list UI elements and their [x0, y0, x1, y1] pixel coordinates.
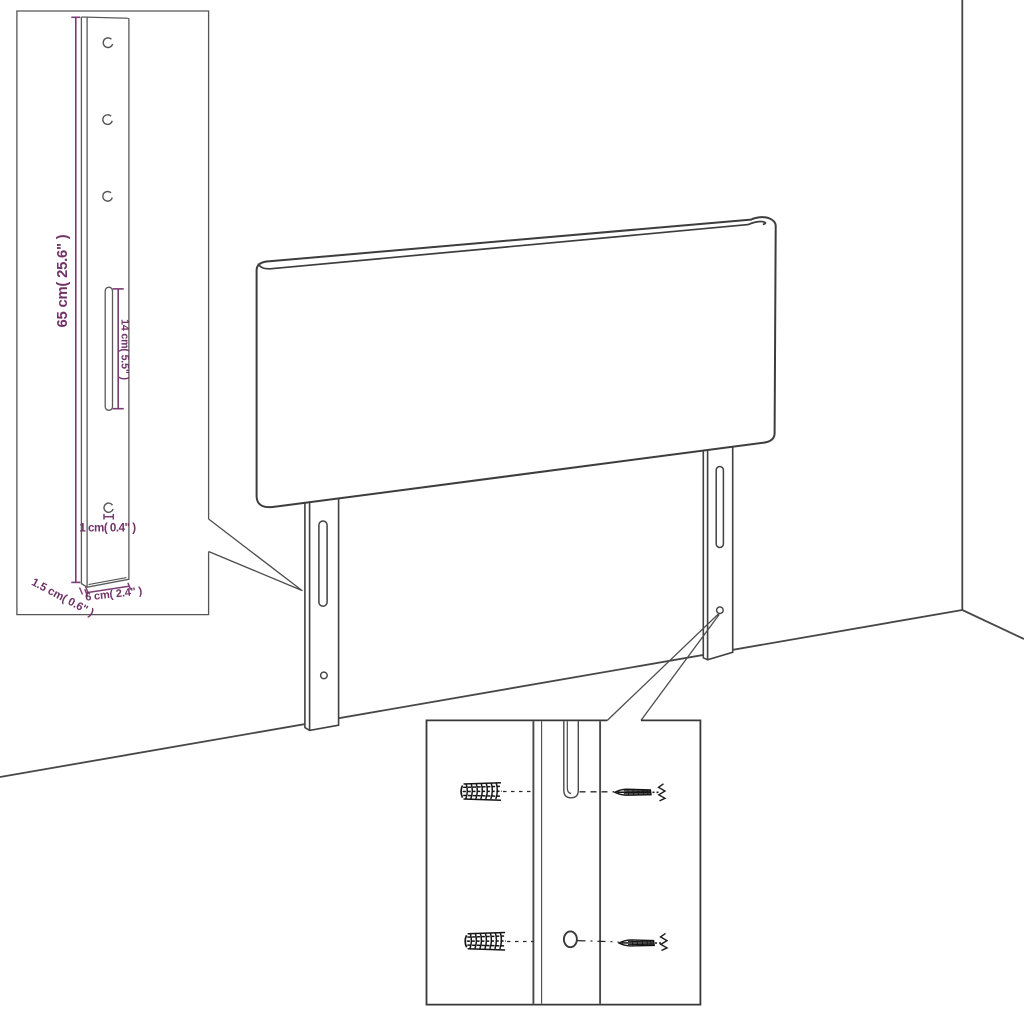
- svg-text:1 cm( 0.4" ): 1 cm( 0.4" ): [79, 522, 136, 535]
- svg-text:14 cm( 5.5" ): 14 cm( 5.5" ): [119, 319, 131, 380]
- svg-text:65 cm( 25.6" ): 65 cm( 25.6" ): [55, 234, 71, 327]
